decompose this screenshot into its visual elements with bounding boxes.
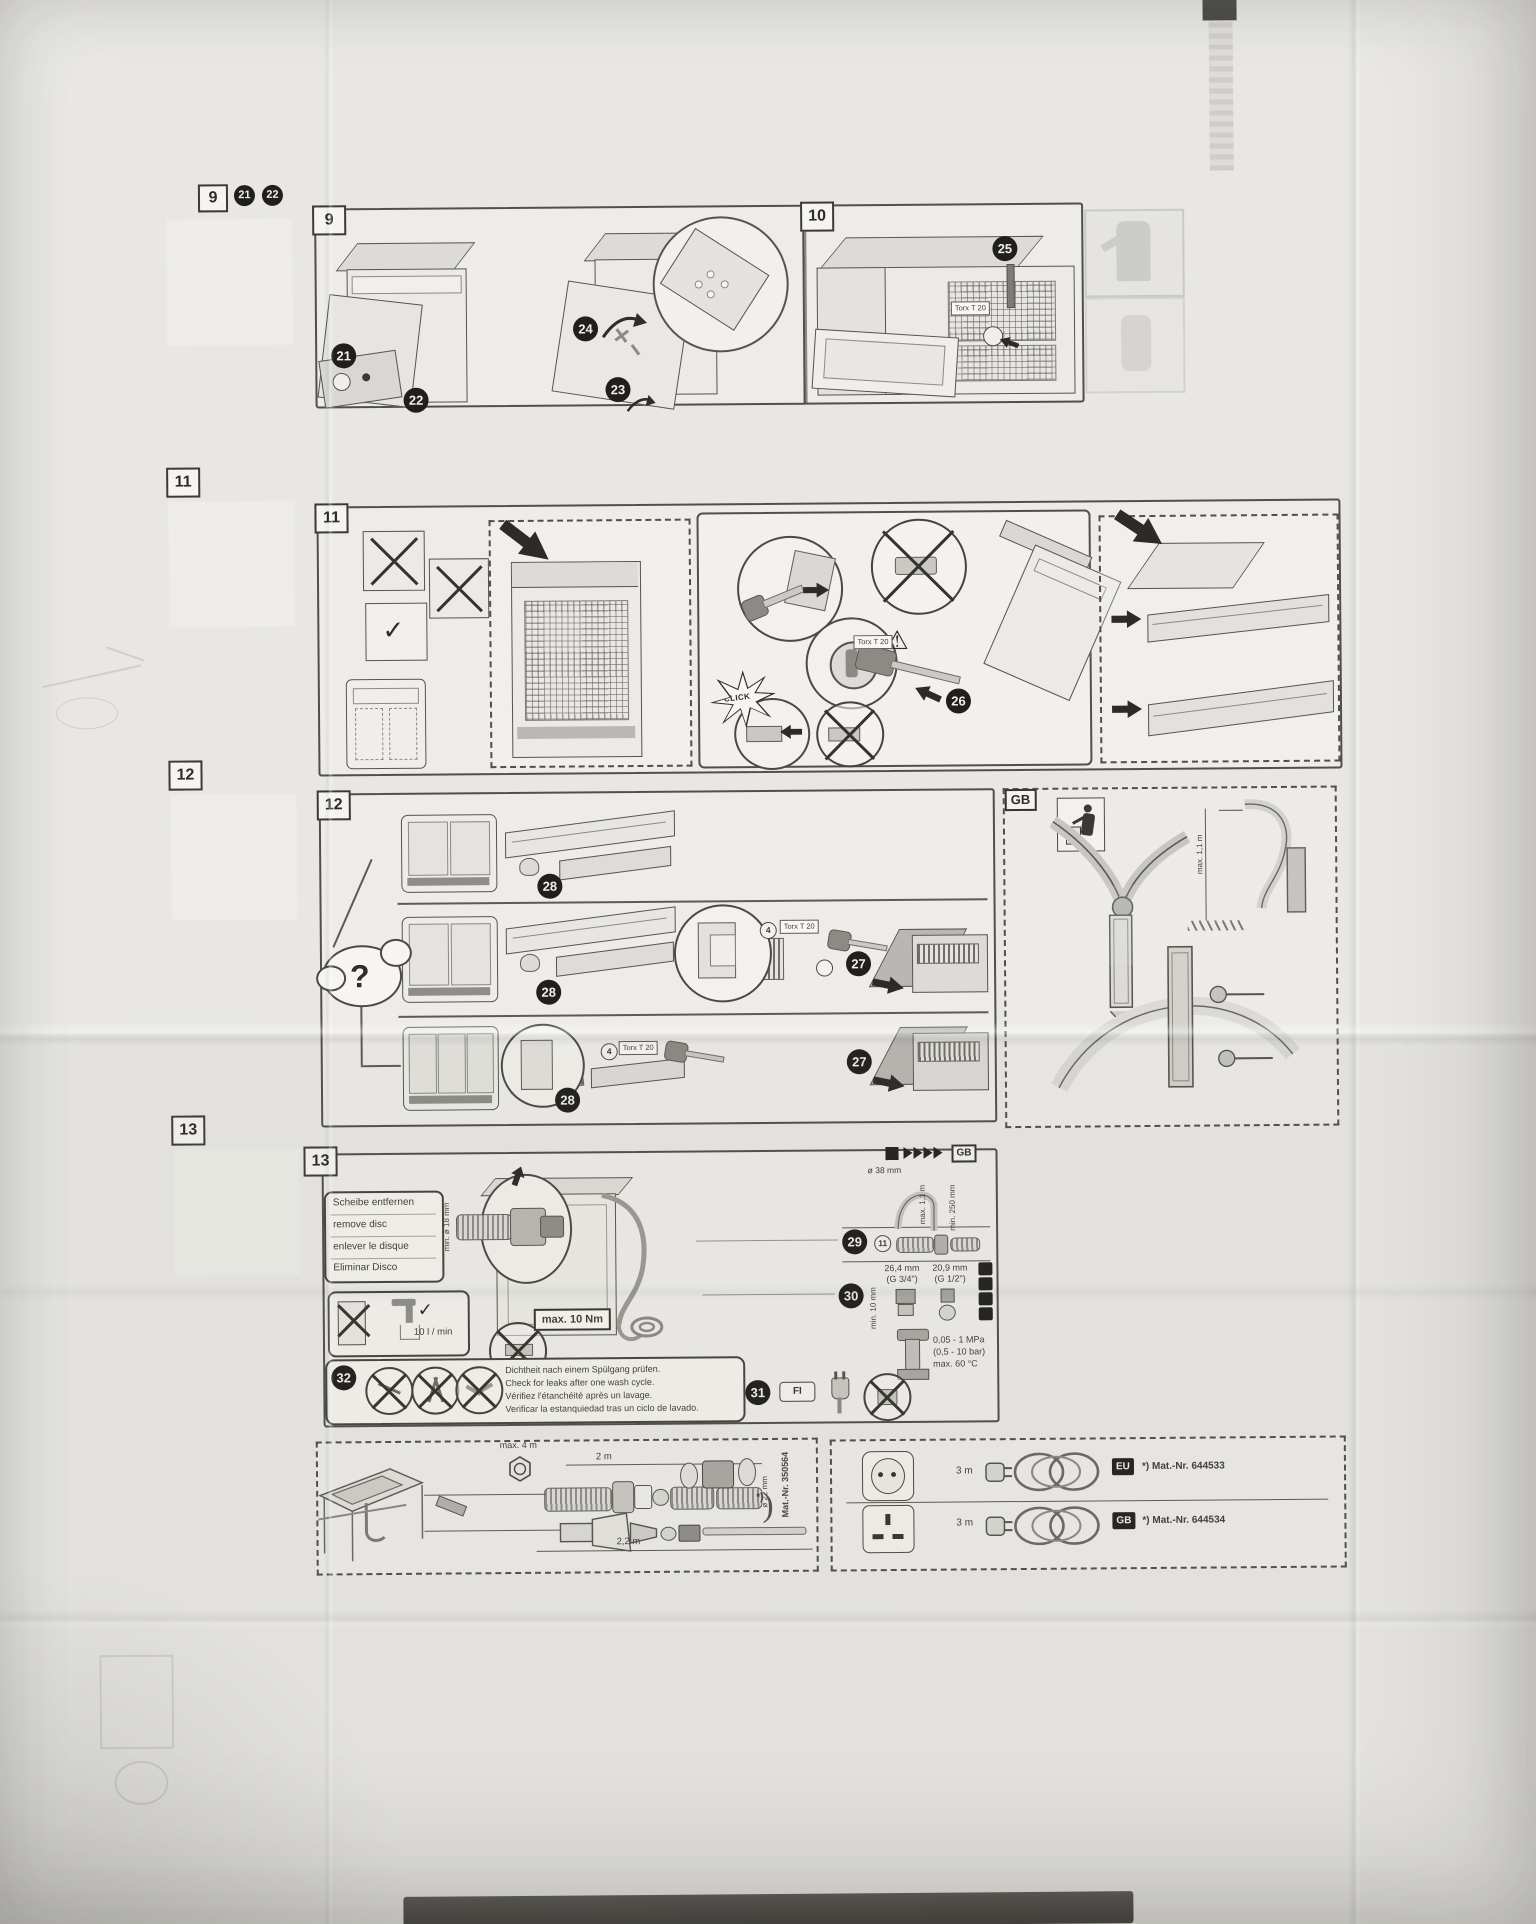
step-badge-26: 26	[946, 688, 971, 713]
leak-line-fr: Vérifiez l'étanchéité après un lavage.	[505, 1390, 652, 1401]
step-badge-24: 24	[573, 316, 598, 341]
ghost-figure-box-2	[1085, 297, 1186, 394]
pressure-line-2: (0,5 - 10 bar)	[933, 1346, 985, 1356]
detail-inset-circle	[652, 216, 789, 353]
qr-code-12	[171, 794, 298, 921]
len-22m-label: 2,2 m	[617, 1536, 641, 1547]
qr-code-9	[166, 219, 293, 346]
question-cloud: ?	[322, 945, 402, 1008]
torque-label-box: max. 10 Nm	[534, 1308, 611, 1331]
check-icon: ✓	[382, 616, 404, 646]
curved-arrow	[599, 307, 647, 343]
hex-nut-icon	[508, 1456, 532, 1482]
schuko-socket-icon	[862, 1451, 914, 1501]
cord1-length: 3 m	[956, 1465, 973, 1476]
section-label-9: 9	[198, 184, 228, 212]
tap-adapter-inset	[480, 1174, 573, 1285]
step-ref-21: 21	[234, 185, 255, 206]
torx-label-row2: Torx T 20	[780, 920, 819, 934]
step-badge-27-row2: 27	[846, 951, 871, 976]
panel-11-sub-middle-illustration: ⚠	[0, 0, 1528, 6]
min-diameter-18-label: min. ø 18 mm	[442, 1202, 451, 1251]
step-badge-27-row3: 27	[847, 1049, 872, 1074]
ghost-qr-1	[1093, 885, 1168, 966]
curved-arrow-small	[626, 393, 656, 415]
rail-row1-illustration	[0, 0, 1528, 6]
gb-ground-hatch	[1188, 920, 1244, 930]
no-kink-icon	[455, 1366, 503, 1414]
step-ref-22: 22	[262, 185, 283, 206]
eu-tag: EU	[1112, 1458, 1134, 1475]
diameter-38-label: ø 38 mm	[868, 1165, 902, 1175]
lower-hose-row	[0, 0, 1528, 6]
panel-9-illustration	[0, 0, 1528, 6]
gb-panel-label: GB	[1005, 789, 1037, 811]
star-note: *)	[756, 1492, 763, 1503]
p13-gb-label: GB	[951, 1144, 976, 1162]
thumb-cabinet-row3	[402, 1026, 499, 1111]
mat-nr-644533: *) Mat.-Nr. 644533	[1142, 1460, 1225, 1472]
page-edge-dashes	[1209, 20, 1234, 170]
spare-fittings	[0, 0, 1528, 6]
lang-line-en: remove disc	[333, 1219, 387, 1230]
check-icon: ✓	[418, 1301, 433, 1321]
step-badge-29: 29	[842, 1229, 867, 1254]
cord2-length: 3 m	[956, 1517, 973, 1528]
step-badge-21: 21	[331, 343, 356, 368]
mat-nr-644534: *) Mat.-Nr. 644534	[1142, 1514, 1225, 1526]
panel-11-header: 11	[314, 503, 348, 533]
thumb-cabinet-row1	[401, 814, 498, 893]
qr-code-11	[168, 501, 295, 628]
qr-code-13	[173, 1149, 300, 1276]
uk-socket-icon	[862, 1505, 914, 1553]
step-badge-28-row1: 28	[537, 874, 562, 899]
dishwasher-rear-illustration	[0, 0, 1528, 6]
panel-9-header: 9	[312, 205, 346, 235]
panel-10-header: 10	[800, 201, 834, 231]
flow-requirement-box: ✓ 10 l / min	[328, 1290, 471, 1357]
leak-line-es: Verificar la estanquiedad tras un ciclo …	[505, 1403, 698, 1415]
section-label-11: 11	[166, 467, 200, 497]
panel-13-header: 13	[303, 1146, 337, 1176]
panel-11-sub-left-illustration	[0, 0, 1528, 6]
panel-11-packaging-pictos: ✓	[0, 0, 1528, 6]
panel-12-header: 12	[317, 790, 351, 820]
bottom-page-edge	[403, 1891, 1133, 1924]
section-label-12: 12	[168, 760, 202, 790]
ghost-sketch-bottom-left	[89, 1645, 190, 1816]
cord-coil-2	[984, 1501, 1109, 1550]
lang-line-fr: enlever le disque	[333, 1241, 409, 1253]
paper-sheet: 9 21 22 11 12 13 9	[0, 0, 1536, 1924]
step-badge-31: 31	[745, 1380, 770, 1405]
page-edge-mark	[1202, 0, 1236, 21]
torx-label-row3: Torx T 20	[619, 1041, 658, 1055]
len-2m-label: 2 m	[596, 1451, 612, 1462]
no-adapter-icon	[863, 1373, 911, 1421]
step-badge-32: 32	[331, 1365, 356, 1390]
language-box: Scheibe entfernen remove disc enlever le…	[324, 1191, 445, 1284]
leak-line-de: Dichtheit nach einem Spülgang prüfen.	[505, 1364, 660, 1375]
thread-fittings-30	[0, 0, 1528, 6]
step-badge-25: 25	[992, 236, 1017, 261]
step-badge-22: 22	[403, 388, 428, 413]
flow-rate-label: 10 l / min	[414, 1326, 453, 1337]
min-height-label: min. 250 mm	[948, 1185, 957, 1231]
circled-4-row3: 4	[601, 1043, 618, 1060]
tap-pressure-illustration	[0, 0, 1528, 6]
step-badge-28-row2: 28	[536, 980, 561, 1005]
upper-hose-row	[0, 0, 1528, 6]
panel-10-illustration	[0, 0, 1528, 6]
max-4m-label: max. 4 m	[500, 1440, 537, 1450]
g12-label: (G 1/2")	[934, 1273, 965, 1283]
gb-arc-hose-illustration	[1050, 936, 1301, 1108]
approval-mark-stack	[978, 1262, 993, 1324]
circled-4-row2: 4	[760, 922, 777, 939]
mm209-label: 20,9 mm	[932, 1262, 967, 1272]
mat-nr-350564: Mat.-Nr. 350564	[780, 1452, 791, 1518]
p13-top-icons: GB	[0, 0, 1528, 6]
no-pliers-icon	[411, 1366, 459, 1414]
step-badge-23: 23	[605, 377, 630, 402]
leak-line-en: Check for leaks after one wash cycle.	[505, 1377, 654, 1388]
gb-max-height-label: max. 1,1 m	[1195, 835, 1204, 875]
section-label-13: 13	[171, 1115, 205, 1145]
ghost-qr-2	[1125, 1295, 1202, 1372]
min-10mm-label: min. 10 mm	[869, 1287, 878, 1329]
gb-tag: GB	[1112, 1512, 1135, 1529]
plug-picto	[823, 1373, 857, 1413]
pressure-line-3: max. 60 °C	[933, 1358, 978, 1368]
hose-fittings-29	[0, 0, 1528, 6]
step-badge-28-row3: 28	[555, 1087, 580, 1112]
cord-coil-1	[984, 1447, 1109, 1496]
ghost-figure-box-1	[1084, 209, 1185, 298]
pressure-line-1: 0,05 - 1 MPa	[933, 1334, 985, 1344]
leak-check-text: Dichtheit nach einem Spülgang prüfen. Ch…	[505, 1361, 739, 1417]
step-badge-30: 30	[839, 1283, 864, 1308]
lang-line-de: Scheibe entfernen	[333, 1197, 414, 1209]
sink-illustration	[318, 1461, 429, 1566]
torx-label-panel10: Torx T 20	[951, 301, 990, 315]
panel-11-sub-right-illustration	[0, 0, 1528, 6]
no-cut-icon	[365, 1367, 413, 1415]
g34-label: (G 3/4")	[886, 1274, 917, 1284]
fi-switch-label: FI	[779, 1382, 815, 1402]
rail-row2-illustration	[0, 0, 1528, 6]
cloud-link-stub	[361, 1065, 401, 1067]
lang-line-es: Eliminar Disco	[333, 1262, 397, 1274]
circled-11: 11	[874, 1235, 891, 1252]
torx-label-panel11: Torx T 20	[853, 635, 892, 649]
rail-row3-illustration	[0, 0, 1528, 6]
ghost-sketch-left	[35, 645, 158, 746]
photographed-instruction-sheet: 9 21 22 11 12 13 9	[0, 0, 1536, 1924]
max-height-label: max. 1,1 m	[918, 1185, 927, 1225]
mm264-label: 26,4 mm	[884, 1263, 919, 1273]
